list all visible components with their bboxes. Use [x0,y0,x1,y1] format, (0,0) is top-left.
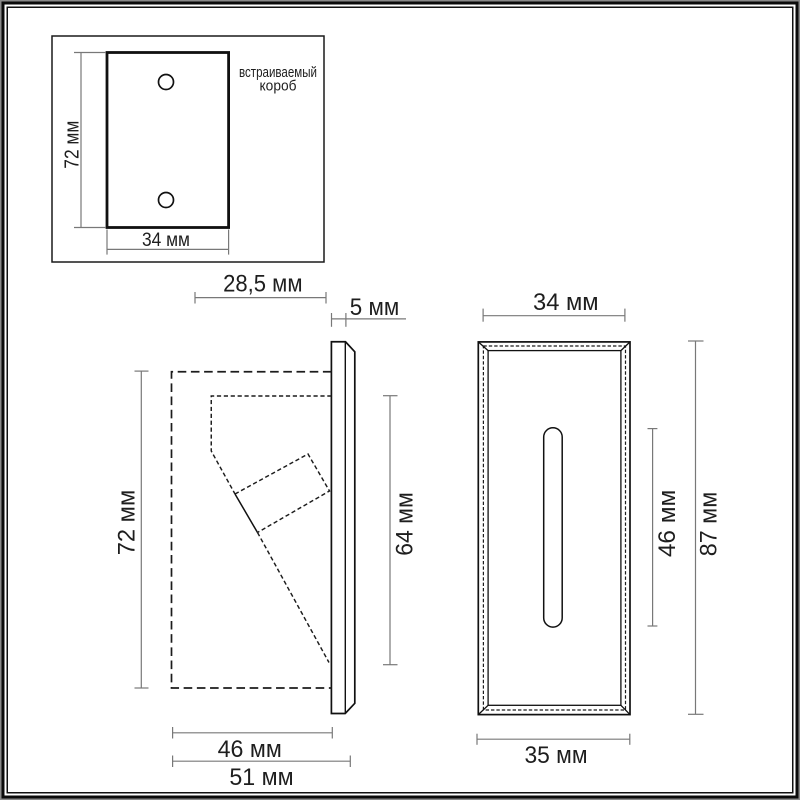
svg-text:35 мм: 35 мм [524,742,587,769]
svg-text:64 мм: 64 мм [392,492,419,556]
svg-text:короб: короб [260,78,297,95]
svg-text:46 мм: 46 мм [218,736,282,763]
svg-text:28,5 мм: 28,5 мм [223,270,302,297]
svg-text:46 мм: 46 мм [654,490,681,558]
svg-text:87 мм: 87 мм [696,492,723,557]
svg-text:51 мм: 51 мм [229,764,293,791]
svg-text:5 мм: 5 мм [350,294,399,321]
svg-text:72 мм: 72 мм [114,490,141,556]
svg-text:34 мм: 34 мм [142,230,190,251]
svg-text:72 мм: 72 мм [62,121,84,169]
svg-text:34 мм: 34 мм [533,289,599,316]
